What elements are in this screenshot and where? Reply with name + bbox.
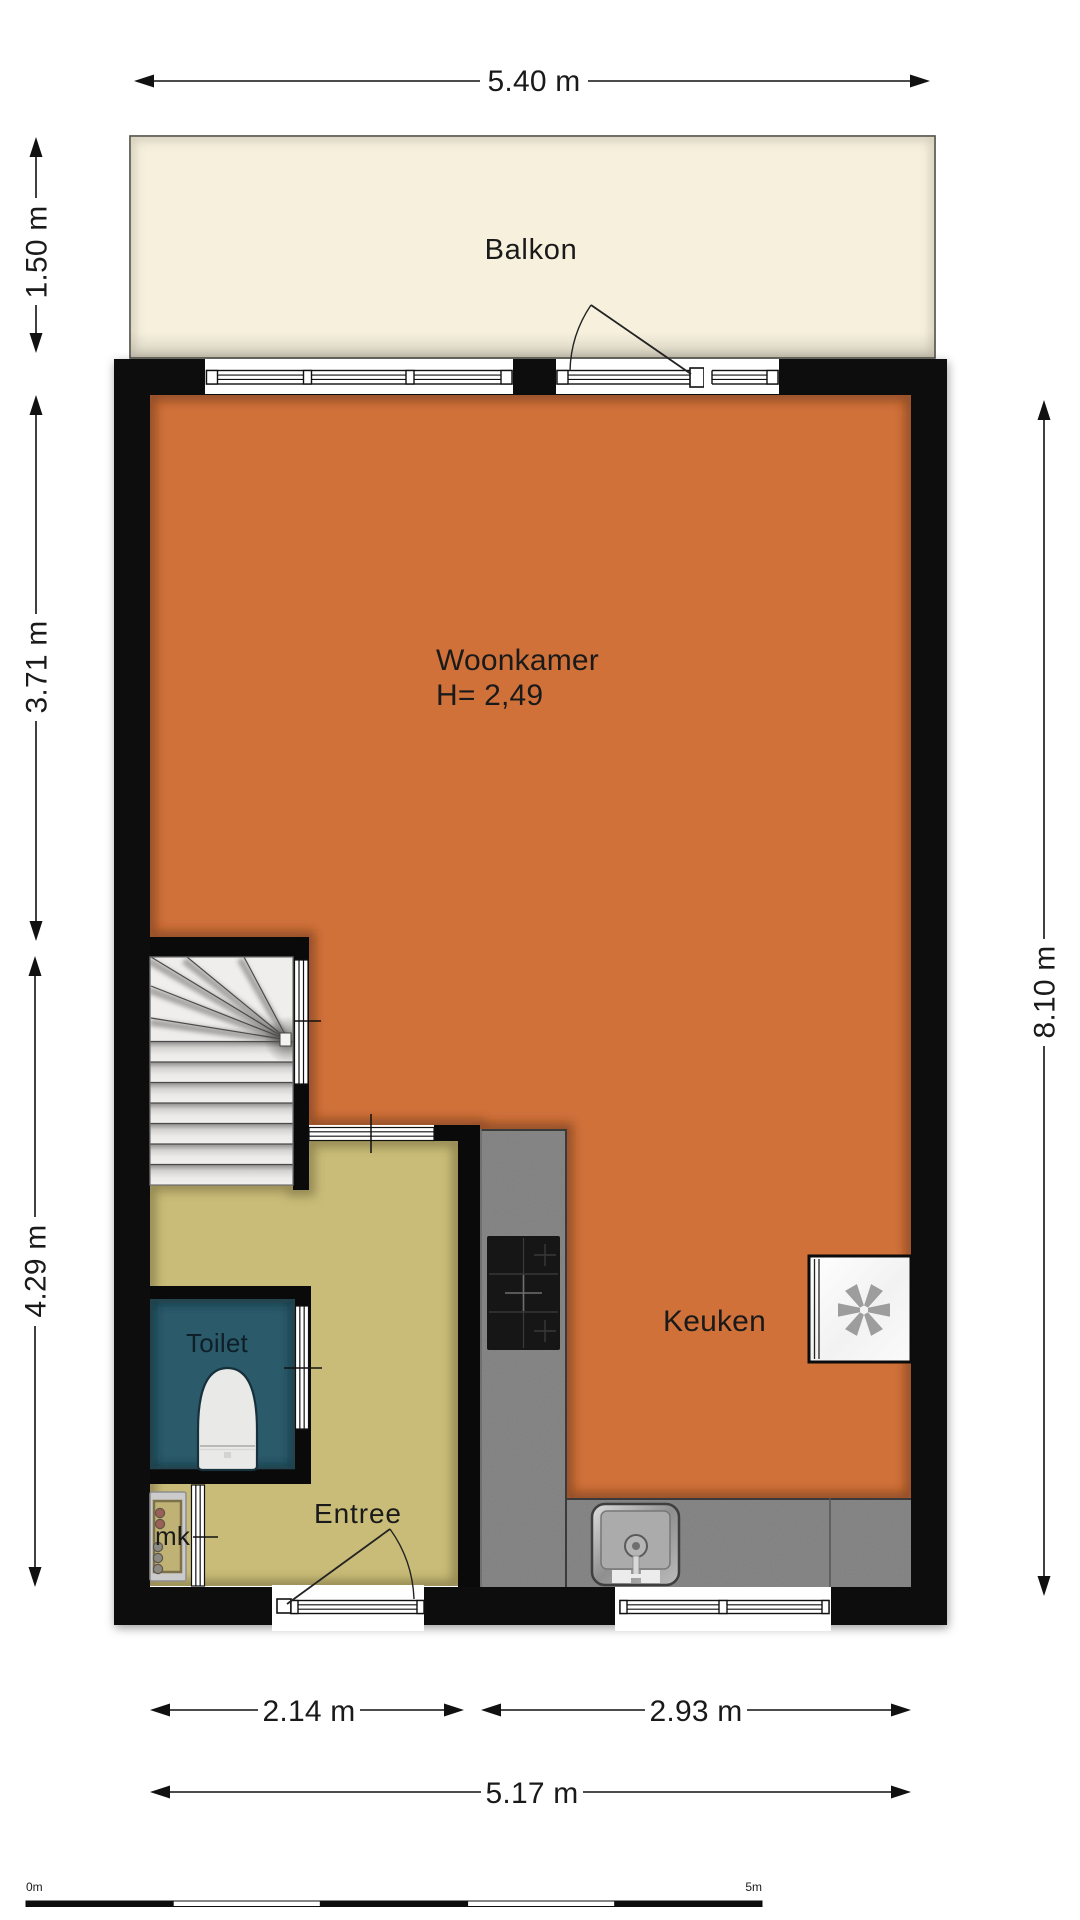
svg-text:8.10 m: 8.10 m (1029, 946, 1062, 1039)
svg-text:Entree: Entree (314, 1498, 402, 1529)
svg-text:H= 2,49: H= 2,49 (436, 679, 543, 712)
svg-text:5m: 5m (745, 1880, 762, 1894)
svg-text:4.29 m: 4.29 m (20, 1225, 53, 1318)
svg-text:Woonkamer: Woonkamer (436, 644, 599, 677)
svg-text:Keuken: Keuken (663, 1305, 766, 1338)
svg-text:Balkon: Balkon (485, 234, 578, 266)
svg-text:1.50 m: 1.50 m (21, 206, 54, 299)
svg-text:2.93 m: 2.93 m (650, 1695, 743, 1728)
svg-text:Toilet: Toilet (186, 1328, 248, 1358)
svg-text:2.14 m: 2.14 m (263, 1695, 356, 1728)
svg-text:5.17 m: 5.17 m (486, 1777, 579, 1810)
svg-text:mk: mk (155, 1521, 191, 1551)
svg-text:3.71 m: 3.71 m (21, 621, 54, 714)
svg-text:0m: 0m (26, 1880, 43, 1894)
svg-text:5.40 m: 5.40 m (488, 65, 581, 98)
